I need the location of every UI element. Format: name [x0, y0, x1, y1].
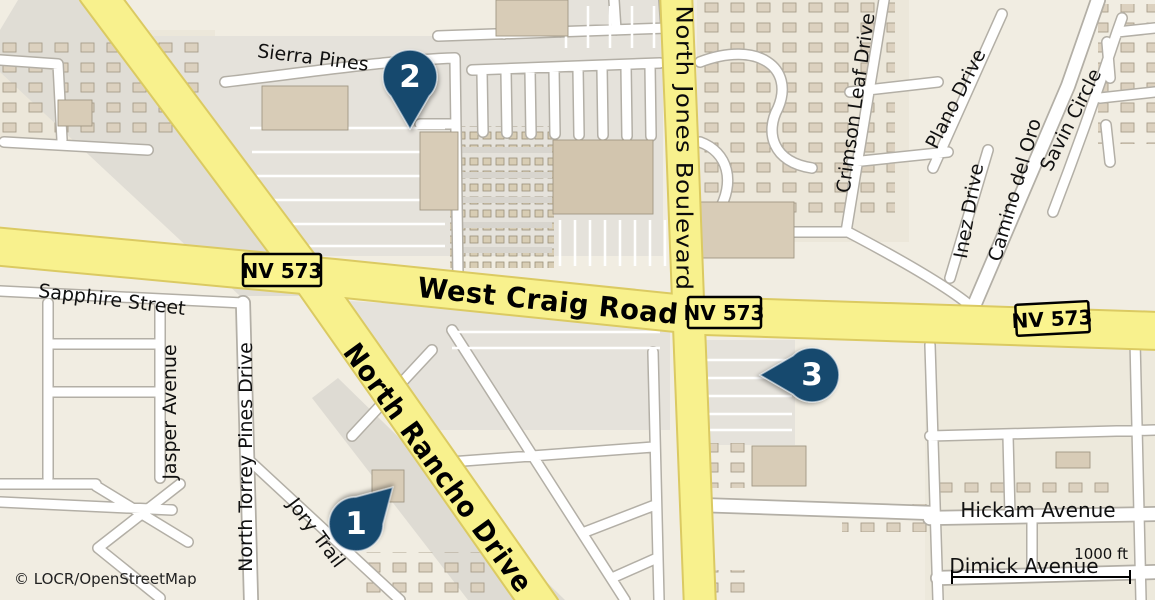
marker-3-number: 3: [801, 357, 823, 393]
shield-nv573-3: NV 573: [1011, 301, 1093, 336]
road-label-north-jones-boulevard: North Jones Boulevard: [671, 6, 696, 291]
marker-1-number: 1: [345, 506, 367, 542]
shield-nv573-2: NV 573: [684, 297, 765, 328]
map-canvas: Sierra Pines Sapphire Street Jasper Aven…: [0, 0, 1155, 600]
shield-nv573-1: NV 573: [242, 254, 323, 286]
attribution-label: © LOCR/OpenStreetMap: [14, 570, 197, 588]
street-label-hickam-avenue: Hickam Avenue: [960, 498, 1115, 522]
street-label-jasper-avenue: Jasper Avenue: [159, 344, 181, 480]
street-label-north-torrey-pines-drive: North Torrey Pines Drive: [235, 342, 257, 572]
scale-bar-label: 1000 ft: [1074, 545, 1128, 563]
shield-nv573-3-label: NV 573: [1011, 305, 1093, 333]
shield-nv573-2-label: NV 573: [684, 301, 765, 325]
shield-nv573-1-label: NV 573: [242, 259, 323, 283]
marker-2-number: 2: [399, 59, 421, 95]
